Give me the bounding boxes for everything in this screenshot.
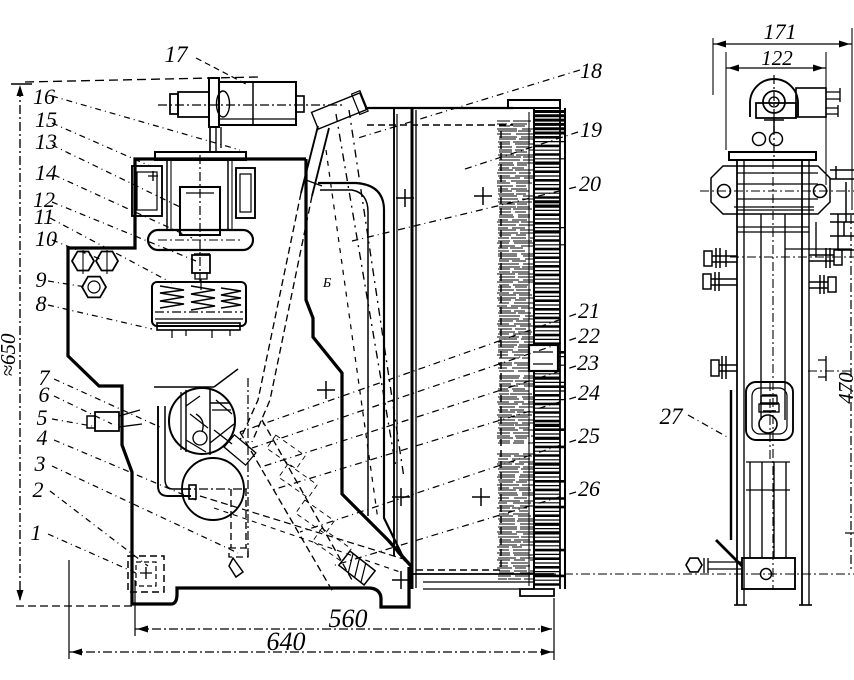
svg-text:9: 9: [36, 267, 47, 292]
svg-text:Б: Б: [322, 276, 331, 291]
svg-text:560: 560: [329, 604, 368, 633]
svg-text:25: 25: [578, 423, 600, 448]
svg-text:13: 13: [35, 129, 57, 154]
svg-text:24: 24: [578, 380, 600, 405]
svg-text:640: 640: [267, 627, 306, 656]
svg-text:3: 3: [34, 451, 46, 476]
svg-text:≈650: ≈650: [0, 333, 20, 377]
svg-text:27: 27: [660, 404, 685, 429]
svg-text:20: 20: [579, 171, 601, 196]
svg-text:18: 18: [580, 58, 602, 83]
svg-text:6: 6: [39, 382, 50, 407]
svg-text:8: 8: [36, 291, 47, 316]
svg-text:171: 171: [764, 19, 797, 44]
svg-text:10: 10: [35, 226, 57, 251]
svg-text:14: 14: [35, 160, 57, 185]
svg-text:1: 1: [31, 520, 42, 545]
svg-text:23: 23: [577, 350, 599, 375]
svg-text:17: 17: [165, 42, 190, 67]
svg-text:4: 4: [37, 425, 48, 450]
svg-text:16: 16: [33, 84, 55, 109]
svg-text:19: 19: [580, 117, 602, 142]
svg-text:470: 470: [834, 372, 854, 404]
svg-text:26: 26: [578, 476, 600, 501]
svg-text:2: 2: [33, 477, 44, 502]
svg-text:21: 21: [578, 298, 600, 323]
svg-text:122: 122: [761, 46, 793, 70]
svg-text:22: 22: [578, 323, 600, 348]
